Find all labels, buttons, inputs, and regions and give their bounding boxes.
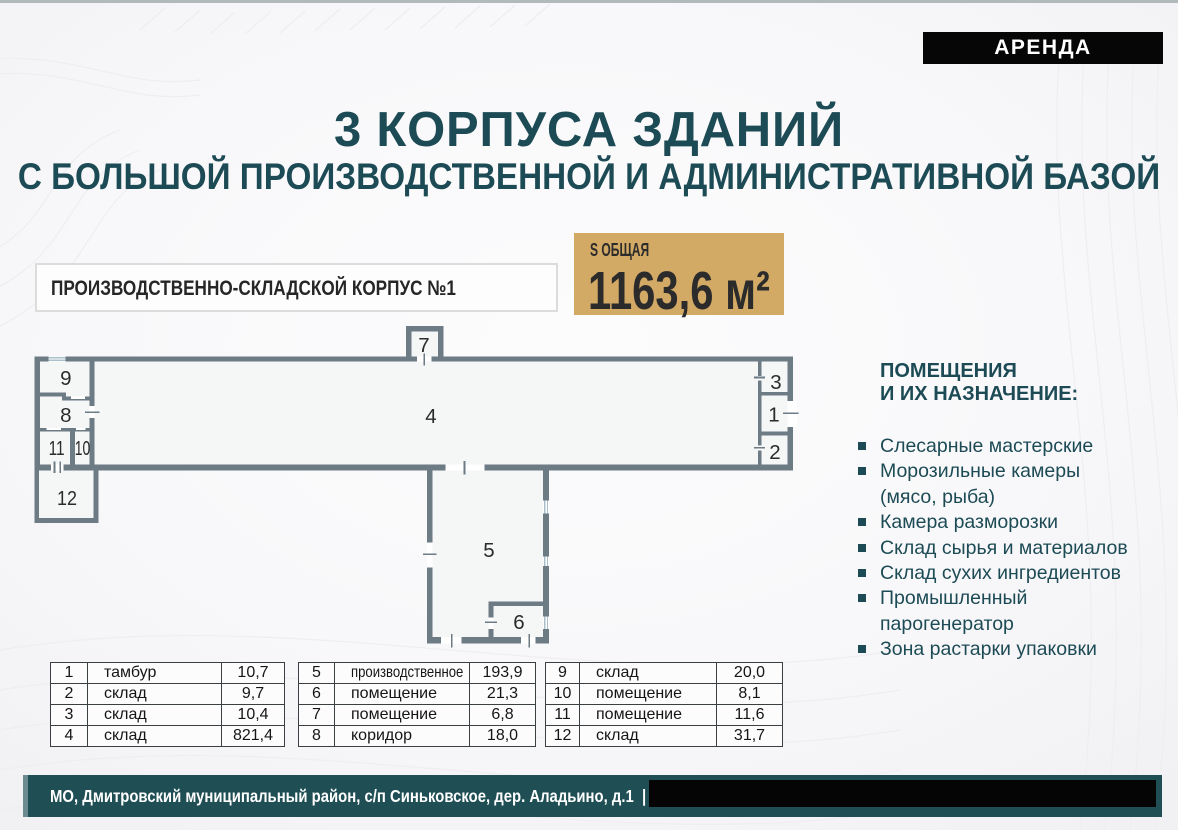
svg-text:4: 4 [425,405,436,428]
svg-text:12: 12 [57,487,77,510]
svg-text:7: 7 [418,334,429,357]
svg-text:8: 8 [60,404,71,427]
svg-text:9: 9 [60,367,71,390]
svg-text:10: 10 [75,437,91,460]
svg-text:11: 11 [49,437,65,460]
svg-text:1: 1 [768,404,779,427]
svg-text:5: 5 [483,539,494,562]
svg-text:3: 3 [770,371,781,394]
svg-text:2: 2 [769,441,780,464]
svg-text:6: 6 [513,611,524,634]
